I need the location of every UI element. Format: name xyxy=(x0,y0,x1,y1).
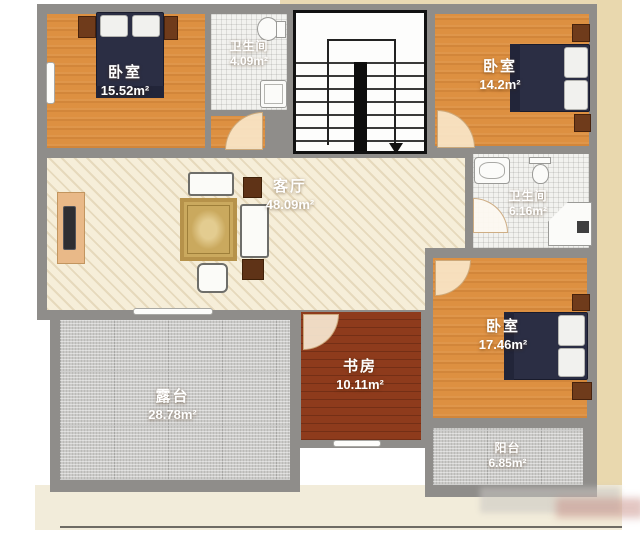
wall-corridor-bedroom xyxy=(425,248,433,310)
sink xyxy=(474,157,510,184)
window-bedroom-left xyxy=(46,62,55,104)
pillow xyxy=(132,15,160,37)
main-sofa xyxy=(240,204,269,258)
room-terrace xyxy=(60,320,290,480)
bed-foot-shade xyxy=(96,86,164,98)
toilet-tank xyxy=(276,21,286,38)
nightstand xyxy=(572,294,590,311)
stair-walk-line xyxy=(327,39,396,145)
stairwell xyxy=(293,10,427,154)
shower-tray-inner xyxy=(264,84,283,104)
window-living-terrace xyxy=(133,308,213,315)
room-balcony xyxy=(433,428,583,485)
nightstand xyxy=(572,24,590,42)
nightstand xyxy=(572,382,592,400)
loveseat-sofa xyxy=(188,172,234,196)
floor-plan-canvas: 卧室 15.52m² 卫生间 4.09m² 卧室 14.2m² 客厅 48.09… xyxy=(0,0,640,537)
nightstand xyxy=(164,16,178,40)
wall-bedroom-top-edge xyxy=(433,248,473,258)
pillow xyxy=(564,80,588,110)
window-study-bottom xyxy=(333,440,381,447)
pillow xyxy=(564,47,588,78)
tv xyxy=(63,206,76,250)
nightstand xyxy=(78,16,96,38)
stair-down-arrow-icon xyxy=(389,143,403,154)
pillow xyxy=(558,348,585,377)
nightstand xyxy=(574,114,591,132)
page-bottom-line xyxy=(60,526,622,528)
bed-foot-shade xyxy=(510,44,520,112)
page-edge-right xyxy=(597,0,622,512)
pillow xyxy=(100,15,128,37)
watermark-smudge-pink xyxy=(556,498,640,518)
toilet-tank xyxy=(529,157,551,164)
rug-pattern xyxy=(187,205,230,254)
pillow xyxy=(558,315,585,346)
sink-basin xyxy=(479,162,505,179)
side-table xyxy=(242,259,264,280)
shower-tray xyxy=(260,80,287,108)
shower-drain xyxy=(577,221,589,233)
toilet-icon xyxy=(532,164,549,184)
armchair xyxy=(197,263,228,293)
rug xyxy=(180,198,237,261)
side-table xyxy=(243,177,262,198)
bed-foot-shade xyxy=(504,312,514,380)
